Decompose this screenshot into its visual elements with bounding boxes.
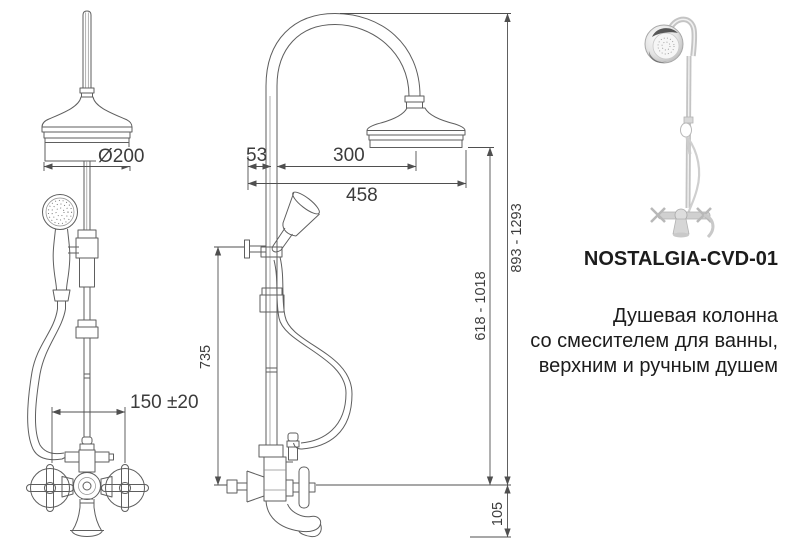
product-model: NOSTALGIA-CVD-01 — [584, 248, 778, 271]
dim-label-overall-height-range: 893 - 1293 — [510, 203, 525, 272]
dim-label-wall-offset: 53 — [246, 146, 267, 165]
dim-label-overall-reach: 458 — [346, 186, 378, 205]
dim-label-head-diameter: Ø200 — [96, 147, 146, 166]
side-view-drawing — [227, 14, 465, 537]
product-description-line: со смесителем для ванны, — [530, 329, 778, 354]
dim-label-spout-drop: 105 — [491, 502, 506, 526]
dim-label-inlet-spacing: 150 ±20 — [130, 393, 199, 412]
dim-label-column-height: 735 — [199, 345, 214, 369]
product-description: Душевая колонна со смесителем для ванны,… — [530, 304, 778, 379]
product-photo — [600, 8, 800, 243]
product-description-line: Душевая колонна — [530, 304, 778, 329]
dim-label-head-height-range: 618 - 1018 — [474, 271, 489, 340]
spec-sheet: Ø200 150 ±20 53 300 458 735 618 - 1018 8… — [0, 0, 800, 553]
dim-label-head-reach: 300 — [333, 146, 365, 165]
product-description-line: верхним и ручным душем — [530, 354, 778, 379]
photo-shower-column — [645, 19, 713, 237]
front-view-drawing — [27, 11, 149, 537]
